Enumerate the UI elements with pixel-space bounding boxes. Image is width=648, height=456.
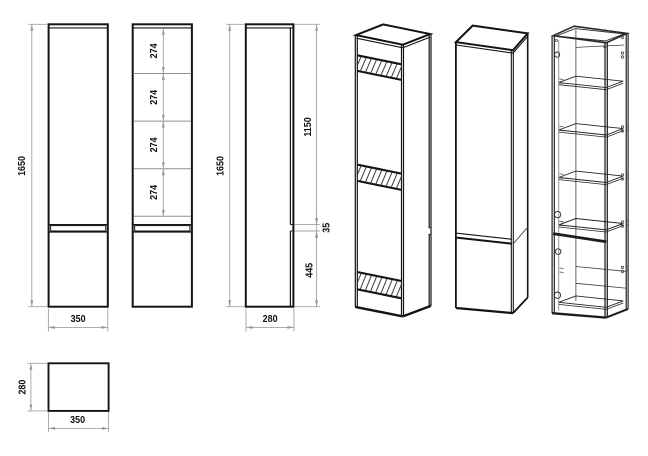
svg-text:350: 350 bbox=[71, 313, 86, 325]
svg-text:350: 350 bbox=[70, 414, 85, 426]
svg-text:274: 274 bbox=[148, 137, 160, 152]
svg-text:445: 445 bbox=[304, 262, 316, 277]
svg-text:280: 280 bbox=[263, 313, 278, 325]
svg-text:274: 274 bbox=[148, 89, 160, 104]
svg-text:274: 274 bbox=[148, 43, 160, 58]
svg-text:280: 280 bbox=[17, 379, 29, 394]
svg-text:1650: 1650 bbox=[215, 156, 227, 176]
svg-text:274: 274 bbox=[148, 184, 160, 199]
svg-text:1650: 1650 bbox=[17, 156, 29, 176]
svg-text:35: 35 bbox=[321, 222, 333, 232]
svg-text:1150: 1150 bbox=[303, 117, 315, 137]
